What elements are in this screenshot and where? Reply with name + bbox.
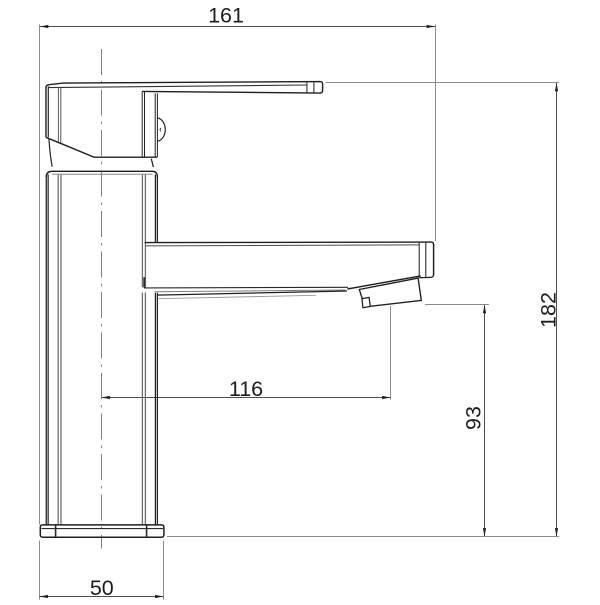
svg-text:50: 50 (90, 576, 114, 600)
svg-text:93: 93 (461, 406, 485, 430)
svg-text:161: 161 (208, 4, 244, 28)
svg-text:116: 116 (229, 377, 263, 401)
svg-text:182: 182 (537, 292, 561, 328)
